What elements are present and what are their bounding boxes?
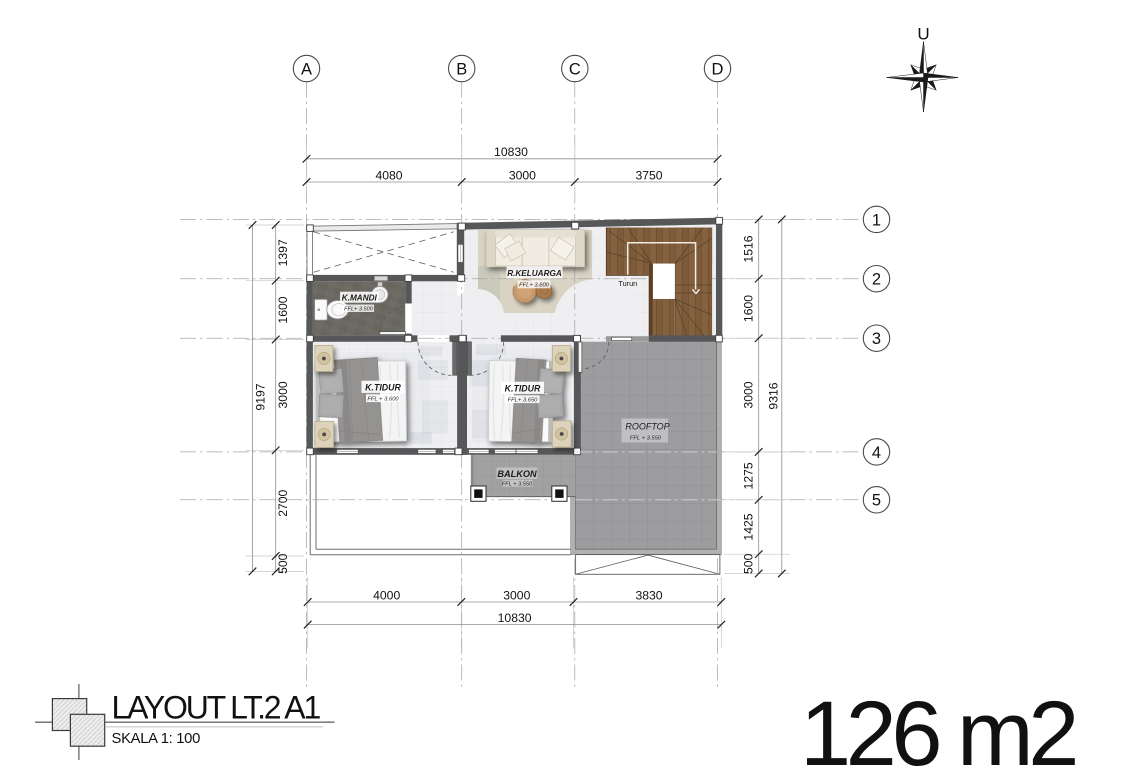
svg-text:10830: 10830 <box>494 145 528 159</box>
svg-text:R.KELUARGA: R.KELUARGA <box>507 269 562 278</box>
svg-text:K.TIDUR: K.TIDUR <box>505 384 541 394</box>
svg-text:C: C <box>569 60 581 78</box>
svg-text:K.MANDI: K.MANDI <box>342 293 378 302</box>
svg-text:B: B <box>456 60 467 78</box>
svg-text:U: U <box>917 25 929 44</box>
svg-text:3000: 3000 <box>509 168 536 182</box>
svg-text:LAYOUT LT.2 A1: LAYOUT LT.2 A1 <box>112 690 321 726</box>
svg-text:BALKON: BALKON <box>497 469 537 479</box>
svg-text:2: 2 <box>872 271 881 289</box>
svg-text:1: 1 <box>872 211 881 229</box>
svg-text:2700: 2700 <box>276 489 290 516</box>
svg-text:1600: 1600 <box>276 296 290 323</box>
svg-text:9197: 9197 <box>254 383 268 410</box>
svg-text:D: D <box>712 60 724 78</box>
svg-text:FFL+ 3.500: FFL+ 3.500 <box>344 307 374 313</box>
svg-text:ROOFTOP: ROOFTOP <box>625 422 669 432</box>
svg-text:FFL + 3.550: FFL + 3.550 <box>630 436 662 442</box>
svg-text:500: 500 <box>276 553 290 574</box>
svg-text:4080: 4080 <box>375 168 402 182</box>
svg-text:A: A <box>301 60 312 78</box>
svg-text:126 m2: 126 m2 <box>800 683 1075 775</box>
svg-text:1397: 1397 <box>276 239 290 266</box>
svg-text:FFL+ 3.600: FFL+ 3.600 <box>519 283 550 289</box>
svg-text:1600: 1600 <box>742 295 756 322</box>
svg-text:3000: 3000 <box>503 588 530 602</box>
svg-text:4000: 4000 <box>373 588 400 602</box>
svg-text:FFL + 3.550: FFL + 3.550 <box>502 481 533 487</box>
svg-text:3000: 3000 <box>276 381 290 408</box>
svg-text:Turun: Turun <box>618 279 637 288</box>
svg-text:500: 500 <box>742 553 756 574</box>
svg-text:4: 4 <box>872 444 881 462</box>
svg-text:SKALA 1: 100: SKALA 1: 100 <box>112 731 201 747</box>
svg-text:3750: 3750 <box>635 168 662 182</box>
svg-text:FFL + 3.600: FFL + 3.600 <box>367 397 399 403</box>
svg-text:1425: 1425 <box>742 513 756 540</box>
svg-text:3000: 3000 <box>742 381 756 408</box>
svg-text:5: 5 <box>872 492 881 510</box>
svg-text:1516: 1516 <box>742 235 756 262</box>
svg-text:K.TIDUR: K.TIDUR <box>365 383 401 393</box>
svg-text:10830: 10830 <box>498 611 532 625</box>
svg-text:3: 3 <box>872 330 881 348</box>
svg-text:9316: 9316 <box>767 382 781 409</box>
svg-text:1275: 1275 <box>742 462 756 489</box>
svg-text:3830: 3830 <box>635 588 662 602</box>
svg-text:FFL+ 3.650: FFL+ 3.650 <box>508 398 539 404</box>
